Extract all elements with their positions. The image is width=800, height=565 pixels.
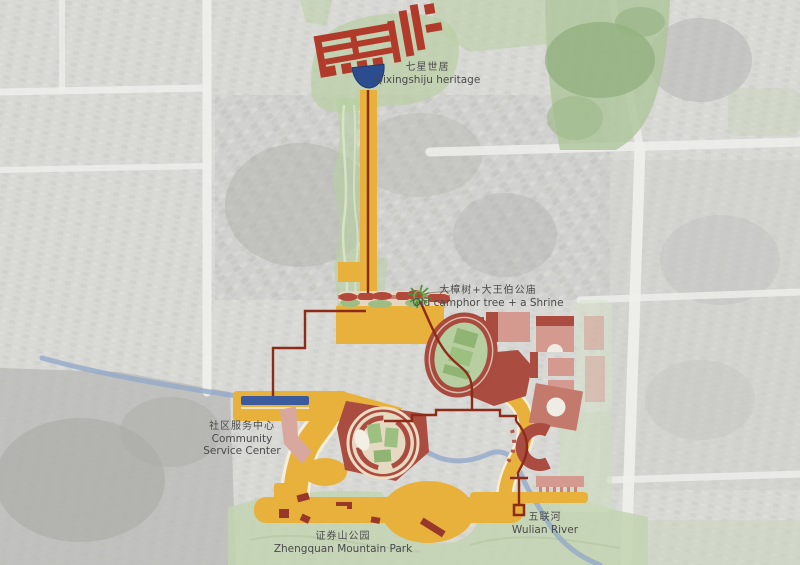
site-plan-map: 七星世居 Qixingshiju heritage 大樟树+大王伯公庙 Old … — [0, 0, 800, 565]
canal-edge — [241, 407, 309, 409]
map-canvas — [0, 0, 800, 565]
comb-building — [536, 476, 584, 487]
waterfront-canal — [241, 396, 309, 405]
